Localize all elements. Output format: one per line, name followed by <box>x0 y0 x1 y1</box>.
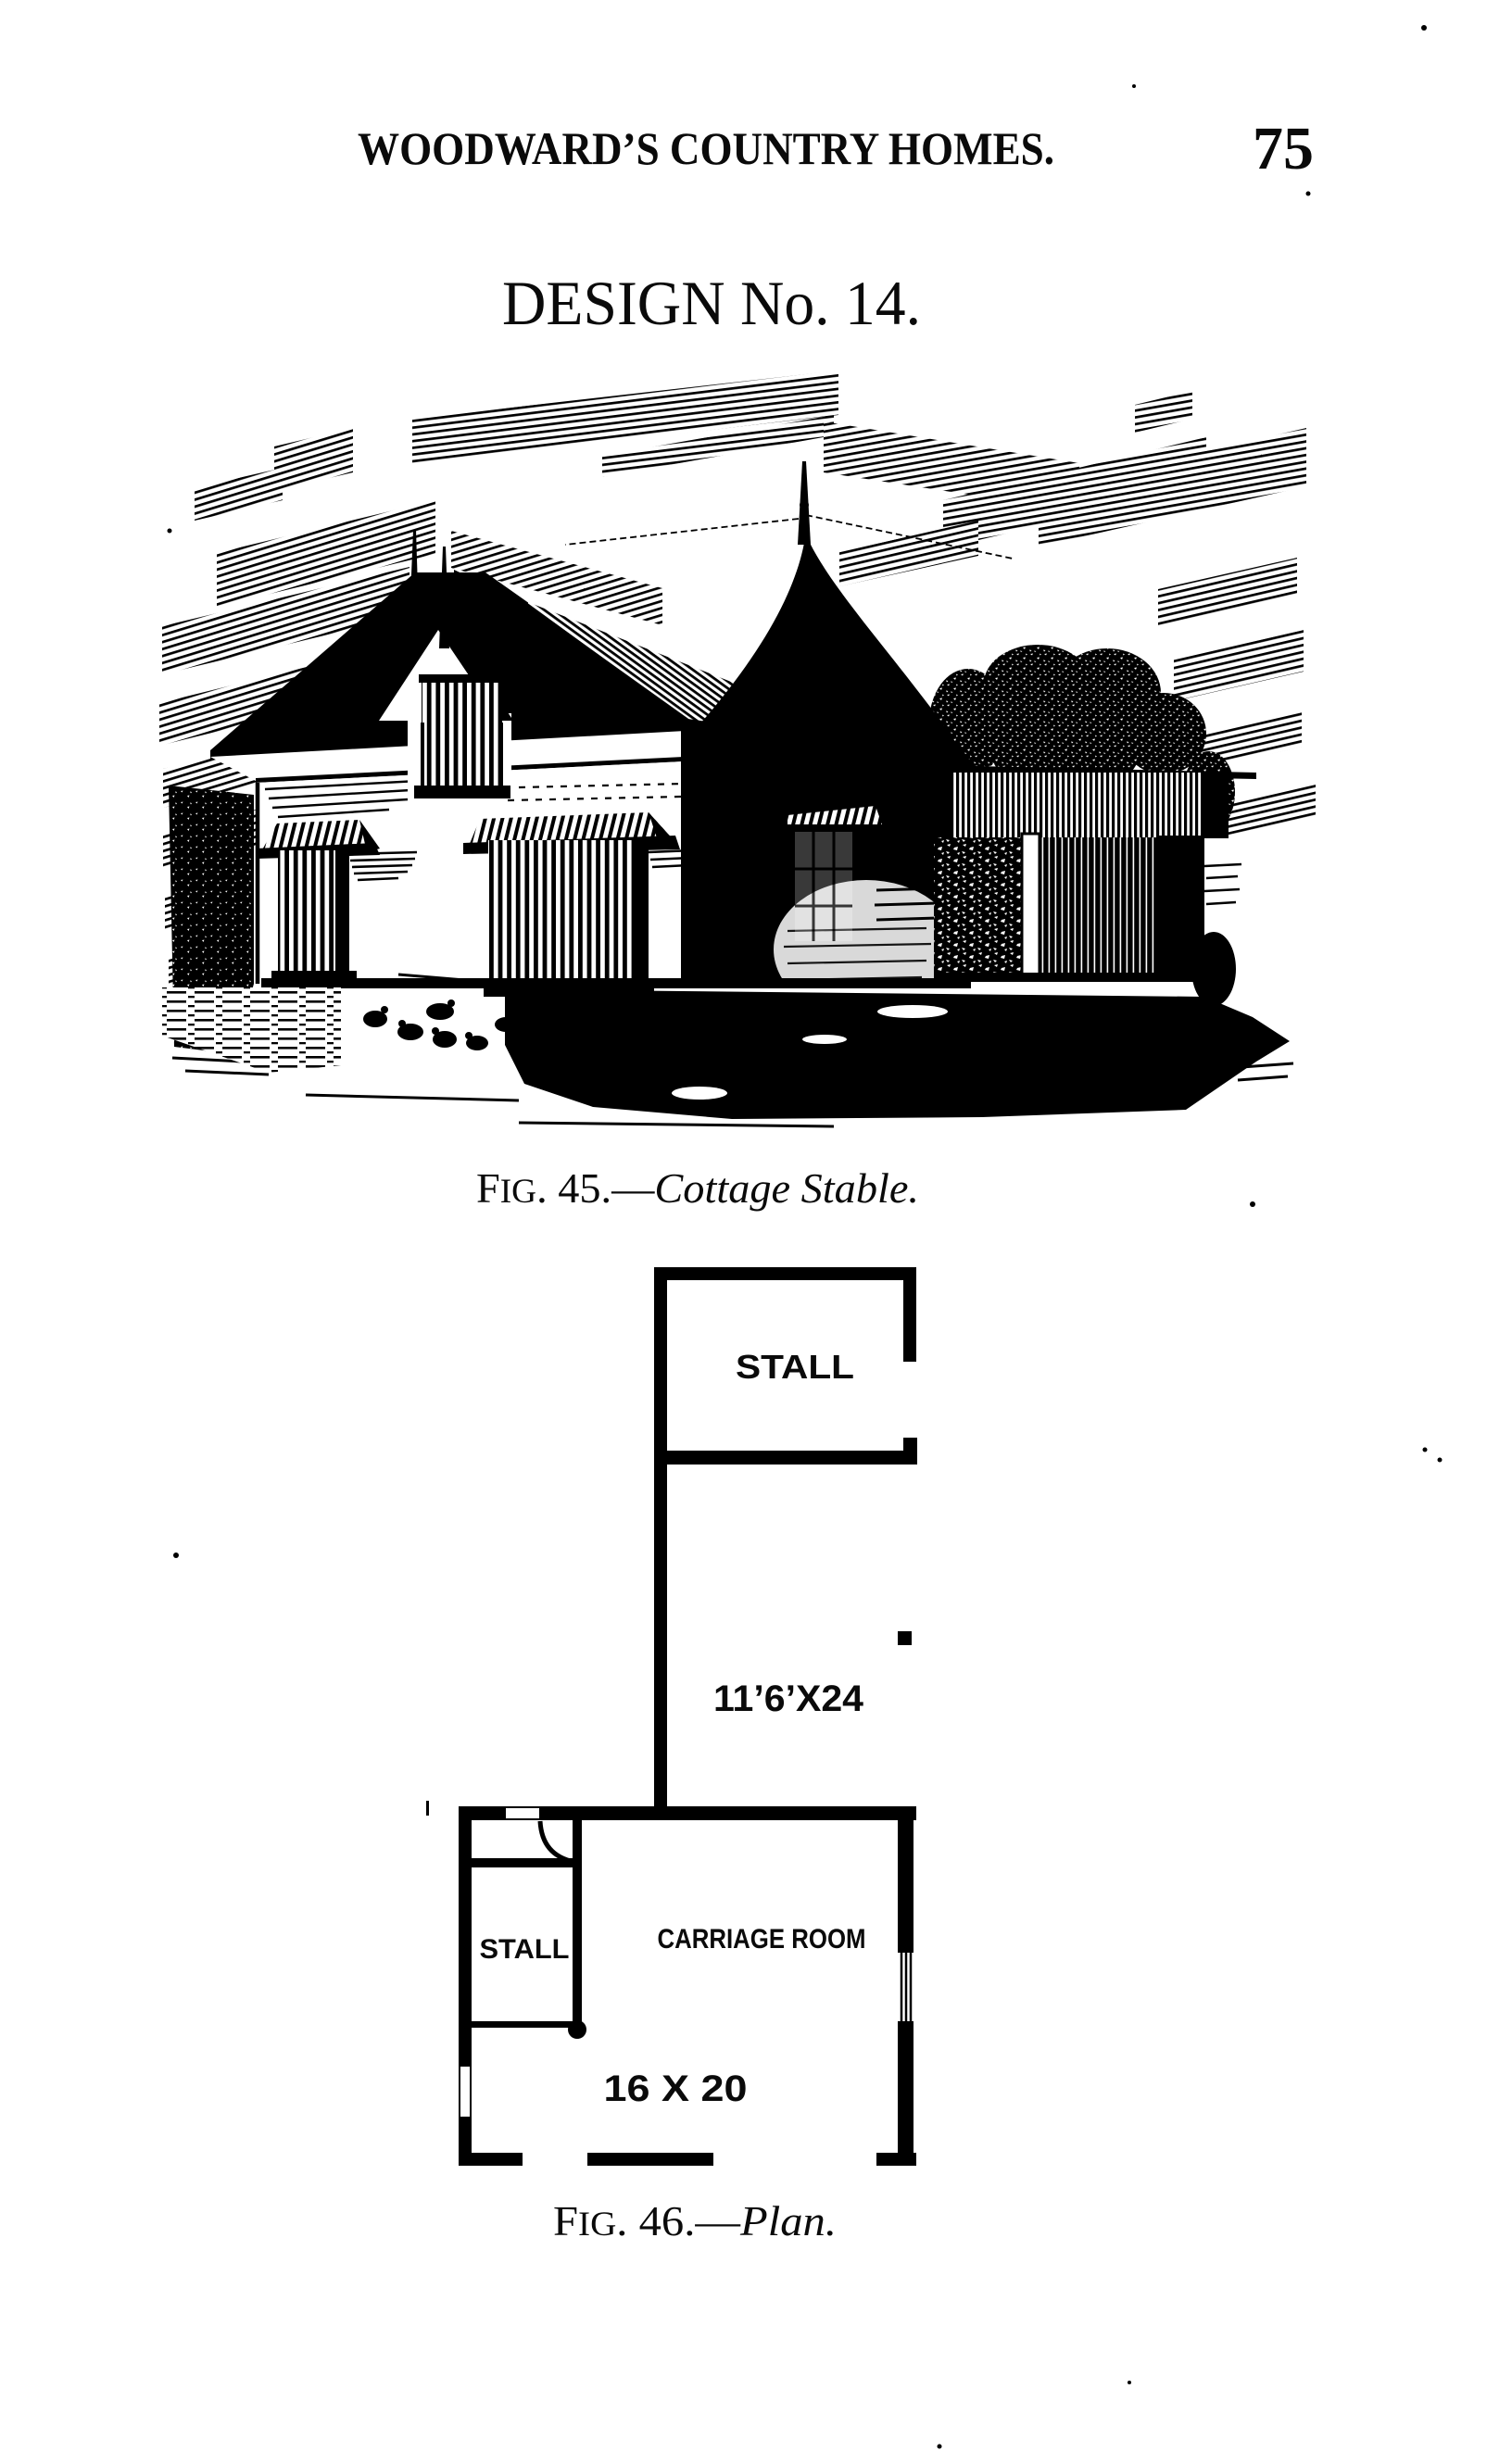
svg-text:STALL: STALL <box>736 1348 854 1386</box>
svg-text:WOODWARD’S COUNTRY HOMES.: WOODWARD’S COUNTRY HOMES. <box>358 122 1054 174</box>
svg-text:FIG. 45.—Cottage Stable.: FIG. 45.—Cottage Stable. <box>476 1164 919 1212</box>
svg-text:75: 75 <box>1253 115 1314 182</box>
svg-text:CARRIAGE ROOM: CARRIAGE ROOM <box>658 1924 866 1955</box>
svg-text:11’6’X24: 11’6’X24 <box>713 1678 864 1719</box>
svg-text:DESIGN No. 14.: DESIGN No. 14. <box>502 268 921 338</box>
svg-text:STALL: STALL <box>480 1934 570 1965</box>
svg-text:16 X 20: 16 X 20 <box>604 2068 748 2109</box>
